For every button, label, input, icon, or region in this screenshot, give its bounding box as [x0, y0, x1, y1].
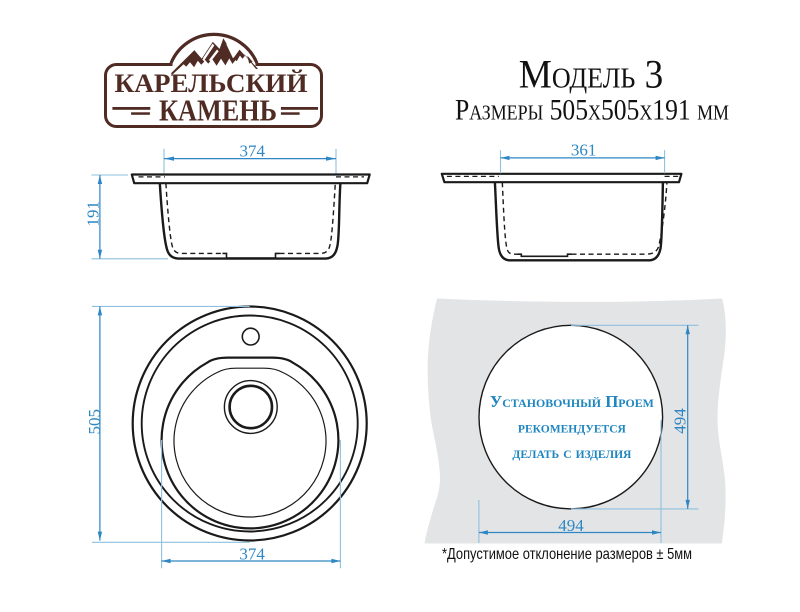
- svg-text:374: 374: [240, 142, 266, 161]
- svg-text:Размеры 505х505х191 мм: Размеры 505х505х191 мм: [455, 94, 729, 127]
- svg-text:494: 494: [670, 408, 689, 434]
- svg-text:374: 374: [239, 544, 265, 563]
- svg-text:КАМЕНЬ: КАМЕНЬ: [159, 93, 277, 128]
- svg-text:361: 361: [571, 141, 597, 160]
- svg-text:рекомендуется: рекомендуется: [518, 417, 626, 436]
- svg-text:191: 191: [83, 201, 102, 227]
- svg-text:Установочный Проем: Установочный Проем: [490, 392, 654, 411]
- svg-text:делать с изделия: делать с изделия: [512, 443, 631, 462]
- svg-text:505: 505: [85, 409, 104, 435]
- svg-text:Модель 3: Модель 3: [519, 52, 664, 97]
- svg-text:*Допустимое отклонение размеро: *Допустимое отклонение размеров ± 5мм: [442, 546, 692, 563]
- svg-text:494: 494: [558, 516, 584, 535]
